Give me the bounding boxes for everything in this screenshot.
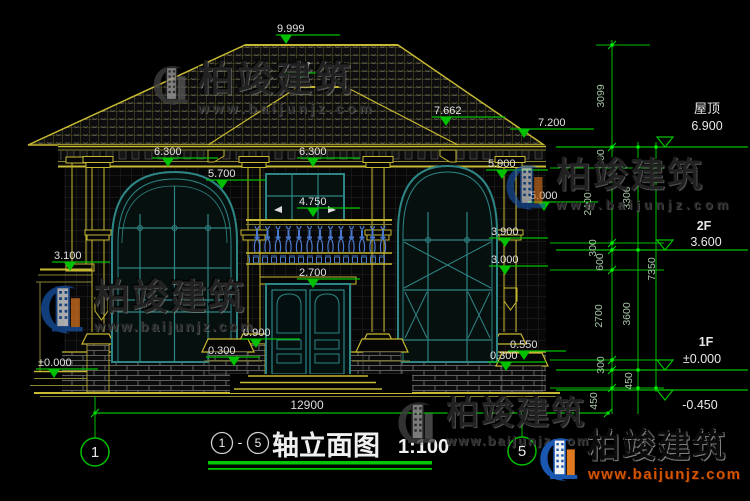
roof-value: 6.900 [691,119,722,133]
balcony [246,220,392,264]
cad-elevation-screenshot: 9.999 8.857 7.662 7.200 6.300 5.700 6.30… [0,0,750,501]
elev-5000: 5.000 [530,190,558,202]
title-underline-thin [208,468,432,470]
entry-door [260,277,356,378]
entry-steps [230,374,412,393]
f2-label: 2F [697,219,712,233]
elev-2700: 2.700 [299,267,327,279]
dim-2700: 2700 [593,304,605,328]
title-underline-thick [208,461,432,465]
title-axis-to: 5 [255,436,262,450]
dim-3600: 3600 [621,302,633,326]
drawing-title: 轴立面图 [272,430,380,461]
dim-450a: 450 [588,392,600,410]
roof-label: 屋顶 [694,101,720,116]
elev-9999: 9.999 [277,23,305,35]
right-level-labels: 屋顶 6.900 2F 3.600 1F ±0.000 -0.450 [682,101,722,412]
dim-12900: 12900 [290,398,324,412]
elev-3000: 3.000 [491,254,519,266]
elev-5700: 5.700 [208,168,236,180]
dim-7350: 7350 [646,257,658,281]
left-arched-window [112,172,237,362]
dim-300b: 300 [595,356,607,374]
elev-5900: 5.900 [488,158,516,170]
hip-roof [28,45,544,145]
dim-3099: 3099 [595,84,607,108]
drawing-scale: 1:100 [398,436,449,458]
title-block: 1 - 5 轴立面图 1:100 [208,430,449,470]
f1-label: 1F [699,335,714,349]
elev-6300-left: 6.300 [154,146,182,158]
elev-7662: 7.662 [434,105,462,117]
elevation-drawing: 9.999 8.857 7.662 7.200 6.300 5.700 6.30… [0,0,750,501]
elev-0300-right: 0.300 [490,350,518,362]
elev-7200: 7.200 [538,117,566,129]
title-axis-from: 1 [219,436,226,450]
axis-bubble-5: 5 [518,443,526,460]
dim-2400: 2400 [582,192,594,216]
elev-3100: 3.100 [54,250,82,262]
elev-0900: 0.900 [243,327,271,339]
elev-0000-left: ±0.000 [38,357,72,369]
elev-0300-left: 0.300 [208,345,236,357]
elev-6300-center: 6.300 [299,146,327,158]
title-dash: - [238,434,243,450]
dim-600a: 600 [595,149,607,167]
axis-bubble-1: 1 [91,444,99,461]
below-grade-value: -0.450 [682,398,717,412]
right-arched-window [398,166,497,362]
dim-3300: 3300 [621,186,633,210]
elev-3900: 3.900 [491,226,519,238]
f2-value: 3.600 [690,235,721,249]
elev-8857: 8.857 [283,61,311,73]
dim-450b: 450 [623,372,635,390]
elev-4750: 4.750 [299,196,327,208]
f1-value: ±0.000 [683,352,721,366]
dim-600b: 600 [594,253,606,271]
